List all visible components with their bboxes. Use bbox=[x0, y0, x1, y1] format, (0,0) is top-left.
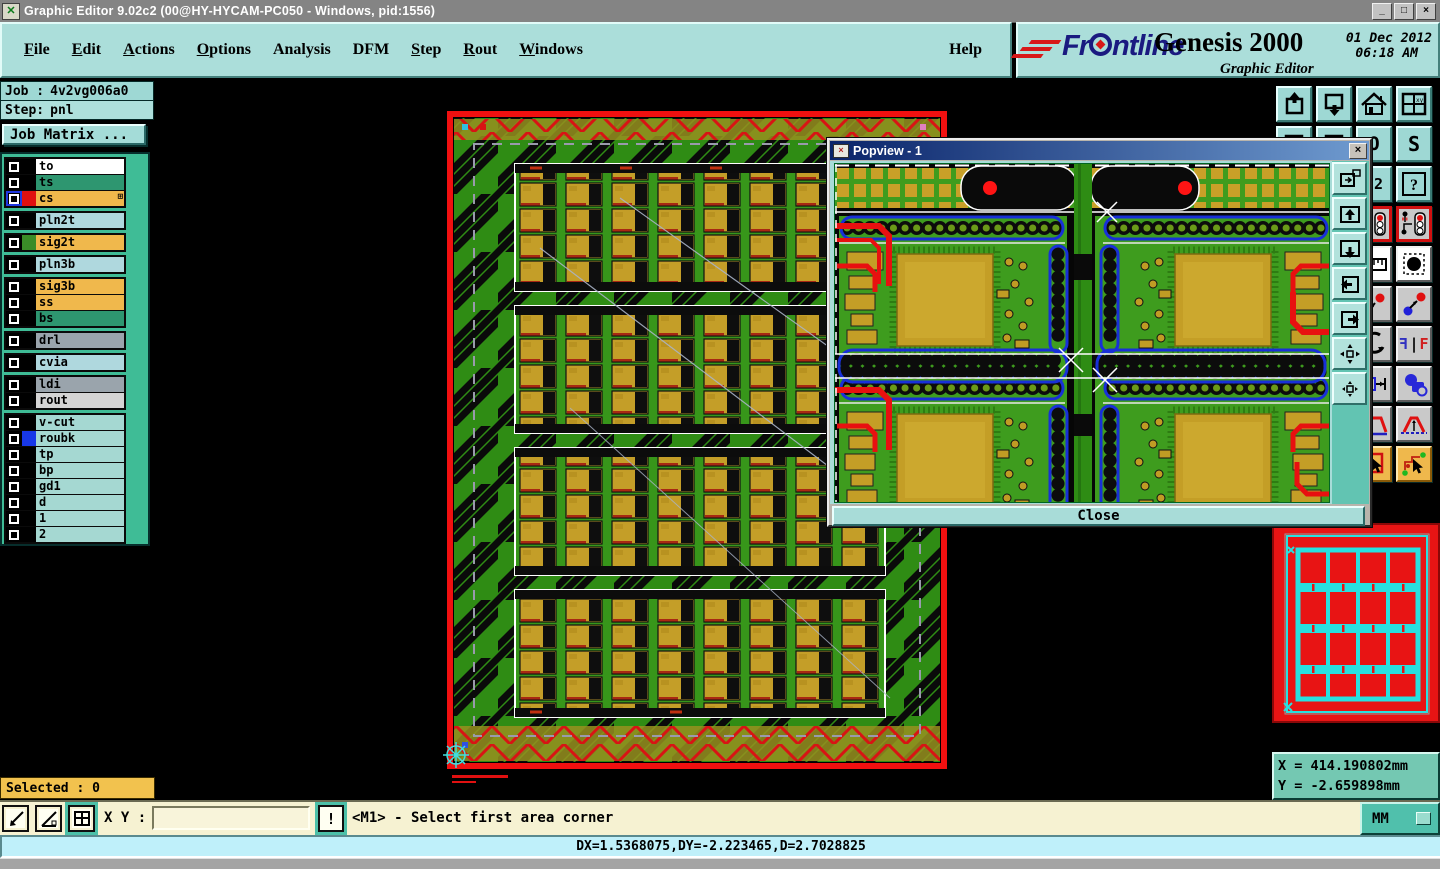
menu-windows[interactable]: Windows bbox=[519, 41, 583, 59]
layer-visibility-checkbox[interactable] bbox=[6, 235, 22, 250]
popview-body bbox=[830, 161, 1369, 504]
layer-name[interactable]: 1 bbox=[36, 511, 124, 526]
layer-color-swatch[interactable] bbox=[22, 393, 36, 408]
layer-name[interactable]: v-cut bbox=[36, 415, 124, 430]
delta-readout-bar: DX=1.5368075,DY=-2.223465,D=2.7028825 bbox=[0, 835, 1440, 858]
profile-peak-icon bbox=[1400, 410, 1428, 438]
popview-pan-left-button[interactable] bbox=[1332, 267, 1367, 300]
layer-name[interactable]: drl bbox=[36, 333, 124, 348]
traffic-light-dots-icon bbox=[1400, 210, 1428, 238]
layer-name[interactable]: pln3b bbox=[36, 257, 124, 272]
layer-group: drl bbox=[4, 331, 126, 350]
layer-visibility-checkbox[interactable] bbox=[6, 447, 22, 462]
angle-icon bbox=[39, 809, 59, 829]
layer-color-swatch[interactable] bbox=[22, 447, 36, 462]
layer-color-swatch[interactable] bbox=[22, 479, 36, 494]
xy-label: X Y : bbox=[104, 810, 146, 826]
prompt-message: <M1> - Select first area corner bbox=[352, 810, 613, 826]
popview-close-icon[interactable]: × bbox=[1349, 143, 1367, 159]
profile-peak-button[interactable] bbox=[1396, 406, 1432, 442]
layer-visibility-checkbox[interactable] bbox=[6, 333, 22, 348]
mirror-ff-icon: F|F bbox=[1399, 335, 1428, 353]
copper-shapes-button[interactable] bbox=[1396, 366, 1432, 402]
window-titlebar[interactable]: ✕ Graphic Editor 9.02c2 (00@HY-HYCAM-PC0… bbox=[0, 0, 1440, 23]
menu-file[interactable]: File bbox=[24, 41, 50, 59]
layer-name[interactable]: d bbox=[36, 495, 124, 510]
layer-name[interactable]: gd1 bbox=[36, 479, 124, 494]
layer-name[interactable]: to bbox=[36, 159, 124, 174]
layer-group: cvia bbox=[4, 353, 126, 372]
shape-s-icon: S bbox=[1408, 132, 1420, 156]
layer-row-gd1[interactable]: gd1 bbox=[6, 479, 124, 494]
layer-group: pln2t bbox=[4, 211, 126, 230]
copper-shapes-icon bbox=[1400, 370, 1428, 398]
net-select-cursor-icon bbox=[1400, 450, 1428, 478]
layer-visibility-checkbox[interactable] bbox=[6, 463, 22, 478]
layer-color-swatch[interactable] bbox=[22, 279, 36, 294]
window-bottom-edge bbox=[0, 858, 1440, 869]
menu-step[interactable]: Step bbox=[411, 41, 441, 59]
xy-window-button[interactable]: xy bbox=[1396, 86, 1432, 122]
layer-visibility-checkbox[interactable] bbox=[6, 377, 22, 392]
units-selector[interactable]: MM bbox=[1360, 802, 1440, 835]
menu-analysis[interactable]: Analysis bbox=[273, 41, 331, 59]
mirror-button[interactable]: F|F bbox=[1396, 326, 1432, 362]
popview-pan-up-button[interactable] bbox=[1332, 197, 1367, 230]
layer-name[interactable]: sig3b bbox=[36, 279, 124, 294]
layer-group: ldi rout bbox=[4, 375, 126, 410]
layer-row-sig2t[interactable]: sig2t bbox=[6, 235, 124, 250]
layer-group: to ts cs⊞ bbox=[4, 157, 126, 208]
layer-visibility-checkbox[interactable] bbox=[6, 393, 22, 408]
layer-name[interactable]: ss bbox=[36, 295, 124, 310]
xy-input[interactable] bbox=[152, 806, 310, 830]
product-subtitle: Graphic Editor bbox=[1220, 61, 1314, 78]
pad-select-button[interactable] bbox=[1396, 246, 1432, 282]
layer-group: sig2t bbox=[4, 233, 126, 252]
date-text: 01 Dec 2012 bbox=[1346, 31, 1432, 46]
push-down-button[interactable] bbox=[1316, 86, 1352, 122]
angle-mode-button[interactable] bbox=[35, 805, 62, 832]
layer-color-swatch[interactable] bbox=[22, 355, 36, 370]
layer-visibility-checkbox[interactable] bbox=[6, 191, 22, 206]
app-icon: ✕ bbox=[2, 3, 20, 20]
layer-visibility-checkbox[interactable] bbox=[6, 257, 22, 272]
overview-drawing bbox=[1272, 523, 1440, 723]
layer-row-cs[interactable]: cs⊞ bbox=[6, 191, 124, 206]
layer-visibility-checkbox[interactable] bbox=[6, 415, 22, 430]
layer-name[interactable]: ldi bbox=[36, 377, 124, 392]
layer-row-2[interactable]: 2 bbox=[6, 527, 124, 542]
layer-color-swatch[interactable] bbox=[22, 415, 36, 430]
layer-color-swatch[interactable] bbox=[22, 191, 36, 206]
layer-name[interactable]: cvia bbox=[36, 355, 124, 370]
menu-bar: File Edit Actions Options Analysis DFM S… bbox=[0, 22, 1012, 78]
layer-visibility-checkbox[interactable] bbox=[6, 355, 22, 370]
help-query-button[interactable]: ? bbox=[1396, 166, 1432, 202]
job-row: Job : 4v2vg006a0 bbox=[0, 81, 154, 101]
layer-name[interactable]: ts bbox=[36, 175, 124, 190]
popview-icon: × bbox=[833, 144, 849, 158]
layer-color-swatch[interactable] bbox=[22, 431, 36, 446]
layer-visibility-checkbox[interactable] bbox=[6, 159, 22, 174]
grid-icon bbox=[72, 809, 92, 829]
frontline-o-icon bbox=[1089, 33, 1112, 56]
clone-window-icon bbox=[1338, 168, 1362, 190]
layer-visibility-checkbox[interactable] bbox=[6, 295, 22, 310]
command-bar: X Y : ! <M1> - Select first area corner … bbox=[0, 800, 1440, 835]
pan-left-icon bbox=[1338, 273, 1362, 295]
layer-name[interactable]: bs bbox=[36, 311, 124, 326]
layer-row-vcut[interactable]: v-cut bbox=[6, 415, 124, 430]
popview-close-button[interactable]: Close bbox=[832, 506, 1365, 526]
layer-color-swatch[interactable] bbox=[22, 235, 36, 250]
diagonal-arrow-icon bbox=[6, 809, 26, 829]
layer-color-swatch[interactable] bbox=[22, 511, 36, 526]
time-text: 06:18 AM bbox=[1346, 46, 1432, 61]
popview-toolbar bbox=[1332, 161, 1369, 504]
connect-points-button[interactable] bbox=[1396, 286, 1432, 322]
popview-window[interactable]: × Popview - 1 × bbox=[827, 138, 1372, 527]
layer-badge-icon: ⊞ bbox=[118, 193, 123, 202]
layer-row-ss[interactable]: ss bbox=[6, 295, 124, 310]
layer-name[interactable]: tp bbox=[36, 447, 124, 462]
panel-overview-map[interactable] bbox=[1272, 523, 1440, 723]
svg-text:xy: xy bbox=[1416, 97, 1424, 104]
net-select-button[interactable] bbox=[1396, 446, 1432, 482]
coord-x: X = 414.190802mm bbox=[1278, 756, 1434, 776]
pad-select-icon bbox=[1400, 250, 1428, 278]
push-down-icon bbox=[1320, 90, 1348, 118]
window-controls: _ □ × bbox=[1372, 3, 1440, 20]
maximize-button[interactable]: □ bbox=[1394, 3, 1414, 20]
layer-visibility-checkbox[interactable] bbox=[6, 495, 22, 510]
layer-name[interactable]: rout bbox=[36, 393, 124, 408]
layer-color-swatch[interactable] bbox=[22, 213, 36, 228]
layer-row-1[interactable]: 1 bbox=[6, 511, 124, 526]
frontline-speedlines-icon bbox=[1029, 40, 1062, 44]
step-label: Step: bbox=[5, 103, 44, 118]
shape-s-button[interactable]: S bbox=[1396, 126, 1432, 162]
minimize-button[interactable]: _ bbox=[1372, 3, 1392, 20]
layer-color-swatch[interactable] bbox=[22, 311, 36, 326]
menu-actions[interactable]: Actions bbox=[123, 41, 175, 59]
menu-options[interactable]: Options bbox=[197, 41, 251, 59]
popview-zoom-fit-button[interactable] bbox=[1332, 337, 1367, 370]
layer-visibility-checkbox[interactable] bbox=[6, 279, 22, 294]
layer-name[interactable]: sig2t bbox=[36, 235, 124, 250]
layer-row-to[interactable]: to bbox=[6, 159, 124, 174]
layer-row-roubk[interactable]: roubk bbox=[6, 431, 124, 446]
xy-window-icon: xy bbox=[1399, 90, 1429, 118]
close-button[interactable]: × bbox=[1416, 3, 1436, 20]
datetime: 01 Dec 2012 06:18 AM bbox=[1346, 31, 1432, 61]
job-value: 4v2vg006a0 bbox=[50, 84, 128, 99]
selected-count: Selected : 0 bbox=[0, 777, 155, 799]
units-value: MM bbox=[1372, 811, 1389, 827]
layer-visibility-checkbox[interactable] bbox=[6, 213, 22, 228]
layer-row-cvia[interactable]: cvia bbox=[6, 355, 124, 370]
measure-mode-button[interactable] bbox=[2, 805, 29, 832]
menu-help[interactable]: Help bbox=[949, 41, 982, 59]
layer-visibility-checkbox[interactable] bbox=[6, 511, 22, 526]
svg-text:?: ? bbox=[1410, 177, 1418, 194]
coordinate-readout: X = 414.190802mm Y = -2.659898mm bbox=[1272, 752, 1440, 800]
job-label: Job : bbox=[5, 84, 44, 99]
units-dropdown-icon[interactable] bbox=[1416, 812, 1431, 825]
delta-readout: DX=1.5368075,DY=-2.223465,D=2.7028825 bbox=[576, 839, 866, 854]
layer-color-swatch[interactable] bbox=[22, 159, 36, 174]
layer-group: pln3b bbox=[4, 255, 126, 274]
home-icon bbox=[1359, 90, 1389, 118]
popview-zoom-out-button[interactable] bbox=[1332, 372, 1367, 405]
menu-dfm[interactable]: DFM bbox=[353, 41, 389, 59]
layer-visibility-checkbox[interactable] bbox=[6, 431, 22, 446]
layer-color-swatch[interactable] bbox=[22, 527, 36, 542]
layer-row-tp[interactable]: tp bbox=[6, 447, 124, 462]
popview-pan-down-button[interactable] bbox=[1332, 232, 1367, 265]
layer-color-swatch[interactable] bbox=[22, 295, 36, 310]
layer-visibility-checkbox[interactable] bbox=[6, 175, 22, 190]
layer-row-rout[interactable]: rout bbox=[6, 393, 124, 408]
layer-row-ts[interactable]: ts bbox=[6, 175, 124, 190]
step-value: pnl bbox=[50, 103, 73, 118]
popview-pan-right-button[interactable] bbox=[1332, 302, 1367, 335]
layer-row-d[interactable]: d bbox=[6, 495, 124, 510]
pan-right-icon bbox=[1338, 308, 1362, 330]
layer-name[interactable]: bp bbox=[36, 463, 124, 478]
layer-name[interactable]: 2 bbox=[36, 527, 124, 542]
layer-color-swatch[interactable] bbox=[22, 495, 36, 510]
layer-name[interactable]: roubk bbox=[36, 431, 124, 446]
layer-color-swatch[interactable] bbox=[22, 463, 36, 478]
menu-rout[interactable]: Rout bbox=[463, 41, 497, 59]
grid-snap-button[interactable] bbox=[68, 805, 95, 832]
home-view-button[interactable] bbox=[1356, 86, 1392, 122]
zoom-out-icon bbox=[1338, 378, 1362, 400]
popview-canvas[interactable] bbox=[834, 163, 1330, 503]
layer-row-ldi[interactable]: ldi bbox=[6, 377, 124, 392]
step-row: Step: pnl bbox=[0, 100, 154, 120]
layer-row-pln3b[interactable]: pln3b bbox=[6, 257, 124, 272]
job-matrix-button[interactable]: Job Matrix ... bbox=[2, 124, 146, 145]
window-title: Graphic Editor 9.02c2 (00@HY-HYCAM-PC050… bbox=[24, 4, 435, 18]
layer-visibility-checkbox[interactable] bbox=[6, 311, 22, 326]
layer-row-drl[interactable]: drl bbox=[6, 333, 124, 348]
layer-visibility-checkbox[interactable] bbox=[6, 527, 22, 542]
layer-color-swatch[interactable] bbox=[22, 257, 36, 272]
layer-list-panel: to ts cs⊞ pln2t sig2t pln3b sig3b ss bs … bbox=[0, 152, 150, 546]
layer-name[interactable]: pln2t bbox=[36, 213, 124, 228]
zoom-fit-icon bbox=[1338, 343, 1362, 365]
popview-title: Popview - 1 bbox=[853, 144, 922, 158]
pan-up-icon bbox=[1338, 203, 1362, 225]
layer-row-bs[interactable]: bs bbox=[6, 311, 124, 326]
coord-y: Y = -2.659898mm bbox=[1278, 776, 1434, 796]
layer-row-pln2t[interactable]: pln2t bbox=[6, 213, 124, 228]
popview-pcb-drawing bbox=[835, 164, 1329, 502]
layer-group: v-cut roubk tp bp gd1 d 1 2 bbox=[4, 413, 126, 544]
layer-group: sig3b ss bs bbox=[4, 277, 126, 328]
pan-down-icon bbox=[1338, 238, 1362, 260]
layer-name[interactable]: cs⊞ bbox=[36, 191, 124, 206]
layer-row-sig3b[interactable]: sig3b bbox=[6, 279, 124, 294]
popview-clone-button[interactable] bbox=[1332, 162, 1367, 195]
alert-button[interactable]: ! bbox=[318, 805, 344, 832]
paste-up-button[interactable] bbox=[1276, 86, 1312, 122]
layer-color-swatch[interactable] bbox=[22, 333, 36, 348]
dfm-traffic-light-alt-button[interactable] bbox=[1396, 206, 1432, 242]
paste-up-icon bbox=[1280, 90, 1308, 118]
product-name: Genesis 2000 bbox=[1154, 27, 1303, 58]
layer-row-bp[interactable]: bp bbox=[6, 463, 124, 478]
popview-titlebar[interactable]: × Popview - 1 × bbox=[830, 141, 1369, 160]
brand-panel: Frntline Genesis 2000 Graphic Editor 01 … bbox=[1016, 22, 1440, 78]
layer-visibility-checkbox[interactable] bbox=[6, 479, 22, 494]
layer-color-swatch[interactable] bbox=[22, 175, 36, 190]
layer-color-swatch[interactable] bbox=[22, 377, 36, 392]
menu-edit[interactable]: Edit bbox=[72, 41, 101, 59]
dot-to-dot-icon bbox=[1400, 290, 1428, 318]
